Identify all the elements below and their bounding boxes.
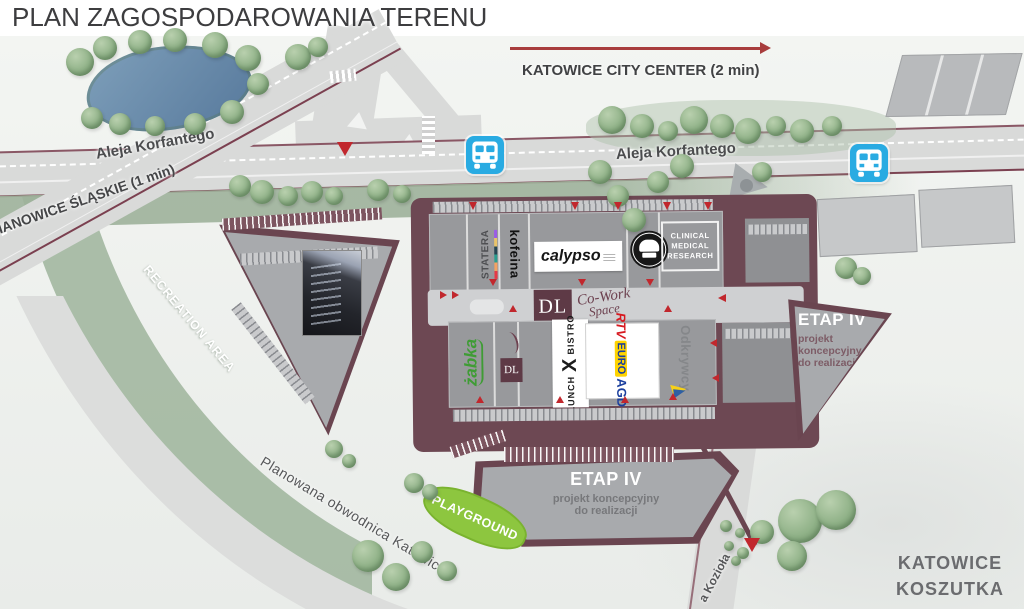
tree bbox=[816, 490, 856, 530]
tree bbox=[735, 528, 745, 538]
unit-divider bbox=[498, 214, 501, 294]
entrance-marker-icon bbox=[578, 279, 586, 286]
tree bbox=[680, 106, 708, 134]
tree bbox=[325, 440, 343, 458]
tree bbox=[66, 48, 94, 76]
tenant-statera: STATERA bbox=[475, 230, 498, 279]
aisle-car-spot bbox=[470, 299, 504, 314]
retail-complex: STATERA kofeina calypso CLINICAL MEDICAL bbox=[411, 194, 820, 452]
entrance-marker-icon bbox=[337, 142, 353, 156]
etap4-east-title: ETAP IV bbox=[798, 310, 890, 330]
tenant-rtv-label: RTV bbox=[613, 313, 628, 339]
entrance-marker-icon bbox=[614, 202, 622, 210]
tree bbox=[163, 28, 187, 52]
office-tower-photo bbox=[302, 250, 362, 336]
tenant-x-label: X bbox=[559, 358, 582, 372]
tree bbox=[247, 73, 269, 95]
bus-icon bbox=[466, 136, 504, 174]
tree bbox=[777, 541, 807, 571]
tree bbox=[325, 187, 343, 205]
tree bbox=[93, 36, 117, 60]
entrance-marker-icon bbox=[646, 279, 654, 286]
tree bbox=[220, 100, 244, 124]
tree bbox=[731, 556, 741, 566]
tree bbox=[853, 267, 871, 285]
tree bbox=[710, 114, 734, 138]
tree bbox=[630, 114, 654, 138]
tree bbox=[235, 45, 261, 71]
tree bbox=[598, 106, 626, 134]
building-right-a bbox=[817, 194, 918, 257]
tenant-dl-small-label: DL bbox=[504, 364, 519, 376]
tenant-zabka-label: żabka bbox=[461, 339, 483, 386]
tree bbox=[735, 118, 761, 144]
tree bbox=[109, 113, 131, 135]
tree bbox=[766, 116, 786, 136]
tenant-kofeina: kofeina bbox=[505, 229, 524, 278]
tenant-rtv-euro-agd: RTV EURO AGD bbox=[613, 313, 629, 408]
building-right-b bbox=[918, 185, 1015, 248]
tree bbox=[308, 37, 328, 57]
entrance-marker-icon bbox=[489, 279, 497, 286]
entrance-marker-icon bbox=[440, 291, 447, 299]
tenant-euro-label: EURO bbox=[615, 340, 627, 376]
etap4-south-title: ETAP IV bbox=[478, 469, 734, 490]
tree bbox=[658, 121, 678, 141]
tree bbox=[301, 181, 323, 203]
tree bbox=[437, 561, 457, 581]
tenant-calypso-label: calypso bbox=[541, 247, 601, 266]
tree bbox=[145, 116, 165, 136]
entrance-marker-icon bbox=[469, 202, 477, 210]
unit-divider bbox=[493, 322, 496, 406]
tree bbox=[822, 116, 842, 136]
tree bbox=[588, 160, 612, 184]
entrance-marker-icon bbox=[664, 305, 672, 312]
tree bbox=[278, 186, 298, 206]
statera-color-bar bbox=[494, 230, 498, 279]
service-block-north bbox=[745, 218, 810, 283]
tenant-kofeina-label: kofeina bbox=[507, 229, 523, 278]
chef-hat-band bbox=[642, 253, 656, 258]
entrance-marker-icon bbox=[663, 202, 671, 210]
entrance-marker-icon bbox=[452, 291, 459, 299]
tree bbox=[422, 484, 438, 500]
tower-windows bbox=[311, 263, 341, 325]
tenant-dl-small-box: DL bbox=[500, 358, 522, 382]
entrance-marker-icon bbox=[704, 202, 712, 210]
tree bbox=[352, 540, 384, 572]
unit-divider bbox=[528, 214, 531, 294]
tenant-calypso-box: calypso bbox=[534, 241, 622, 272]
entrance-marker-icon bbox=[571, 202, 579, 210]
entrance-marker-icon bbox=[621, 396, 629, 403]
zebra-crossing-2 bbox=[422, 116, 435, 154]
district-line2: KOSZUTKA bbox=[884, 576, 1016, 602]
entrance-marker-icon bbox=[710, 339, 717, 347]
tree bbox=[128, 30, 152, 54]
parking-row-service bbox=[747, 224, 807, 235]
tenant-statera-label: STATERA bbox=[480, 230, 492, 279]
city-center-arrowhead bbox=[760, 42, 771, 54]
calypso-small-print bbox=[604, 251, 616, 260]
building-top-right-slit2 bbox=[965, 55, 984, 115]
tree bbox=[670, 154, 694, 178]
clinical-line3: RESEARCH bbox=[667, 251, 713, 261]
clinical-line1: CLINICAL bbox=[671, 231, 710, 241]
bus-icon bbox=[850, 144, 888, 182]
entrance-marker-icon bbox=[669, 393, 677, 400]
city-center-arrow bbox=[510, 47, 762, 50]
tenant-zabka: żabka bbox=[461, 339, 481, 386]
etap4-south-sub1: projekt koncepcyjny bbox=[478, 493, 734, 505]
parking-row-south bbox=[453, 407, 715, 422]
entrance-marker-icon bbox=[712, 374, 719, 382]
tree bbox=[752, 162, 772, 182]
tree bbox=[720, 520, 732, 532]
district-line1: KATOWICE bbox=[884, 550, 1016, 576]
entrance-marker-icon bbox=[718, 294, 726, 302]
tree bbox=[622, 208, 646, 232]
tenant-lunch-label: LUNCH bbox=[566, 376, 576, 413]
junction-island bbox=[347, 111, 369, 130]
building-top-right bbox=[885, 53, 1022, 117]
bus-stop-west bbox=[466, 136, 504, 174]
clinical-line2: MEDICAL bbox=[671, 241, 709, 251]
tree bbox=[647, 171, 669, 193]
parking-row-yard bbox=[504, 447, 674, 462]
tree bbox=[404, 473, 424, 493]
tree bbox=[724, 541, 734, 551]
tenant-clinical-box: CLINICAL MEDICAL RESEARCH bbox=[661, 221, 720, 272]
unit-divider bbox=[466, 215, 469, 295]
tree bbox=[250, 180, 274, 204]
chef-hat-icon bbox=[639, 240, 659, 252]
city-center-label: KATOWICE CITY CENTER (2 min) bbox=[522, 62, 760, 79]
entrance-marker-icon bbox=[509, 305, 517, 312]
tree bbox=[382, 563, 410, 591]
tree bbox=[342, 454, 356, 468]
entrance-marker-icon bbox=[476, 396, 484, 403]
tree bbox=[81, 107, 103, 129]
tree bbox=[367, 179, 389, 201]
entrance-marker-icon bbox=[556, 396, 564, 403]
tree bbox=[184, 113, 206, 135]
tree bbox=[202, 32, 228, 58]
etap4-south-sub2: do realizacji bbox=[478, 505, 734, 517]
tenant-bistro-label: BISTRO bbox=[565, 314, 575, 354]
building-top-right-slit bbox=[925, 55, 944, 115]
road-sign-dot bbox=[740, 179, 753, 192]
entrance-marker-icon bbox=[744, 538, 760, 552]
tree bbox=[229, 175, 251, 197]
page-title: PLAN ZAGOSPODAROWANIA TERENU bbox=[12, 2, 487, 33]
building-north: STATERA kofeina calypso CLINICAL MEDICAL bbox=[429, 211, 724, 296]
tree bbox=[790, 119, 814, 143]
tree bbox=[411, 541, 433, 563]
buildings-right-pair bbox=[817, 185, 1016, 257]
bus-stop-east bbox=[850, 144, 888, 182]
tree bbox=[393, 185, 411, 203]
site-plan: STATERA kofeina calypso CLINICAL MEDICAL bbox=[0, 0, 1024, 609]
district-label: KATOWICE KOSZUTKA bbox=[884, 550, 1016, 602]
